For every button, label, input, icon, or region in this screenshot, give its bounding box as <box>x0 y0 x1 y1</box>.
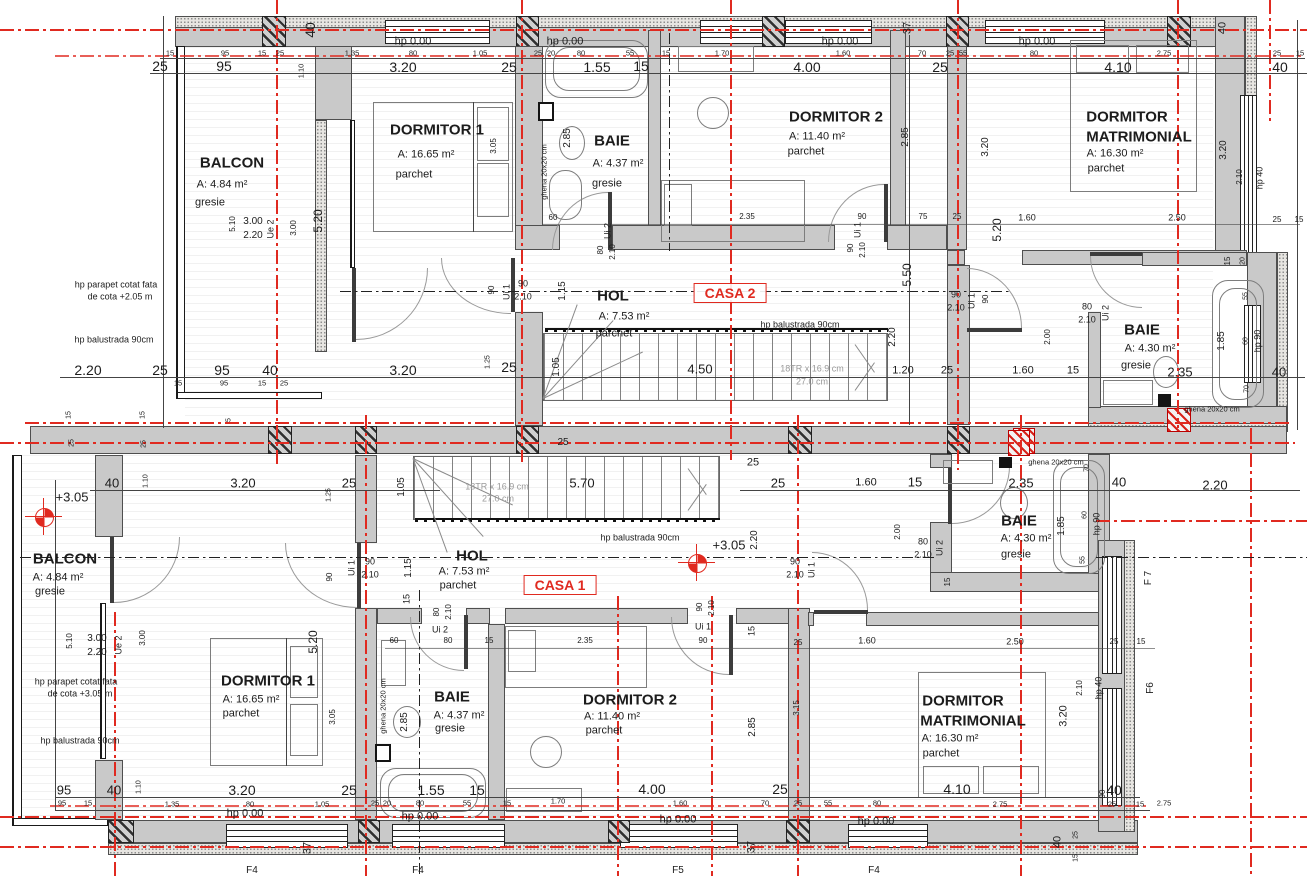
dim: 5.20 <box>312 209 324 232</box>
dim: 15 <box>1296 49 1304 57</box>
dim: 60 <box>1243 337 1250 345</box>
note: ghena 20x20 cm <box>1028 458 1083 466</box>
column <box>516 426 539 454</box>
wall-matrimonial-north-lower-a <box>808 612 814 626</box>
dim: 40 <box>1272 60 1288 74</box>
door-label: 90 <box>951 291 961 300</box>
dim: 2.20 <box>1202 479 1227 492</box>
door-label: 80 <box>1082 303 1092 312</box>
level-label: hp 0.00 <box>660 815 697 826</box>
dim: 1.70 <box>715 49 730 57</box>
dim: 15 <box>66 411 73 419</box>
dim: 37 <box>303 842 314 854</box>
dim: 1.60 <box>1018 214 1036 223</box>
dim: 2.75 <box>993 800 1008 808</box>
house-label: CASA 1 <box>524 575 597 595</box>
room-label: BAIE <box>1124 323 1160 338</box>
dim: 1.25 <box>326 488 333 502</box>
room-finish: parchet <box>923 749 960 760</box>
dim: 15 <box>140 411 147 419</box>
room-label: DORMITOR 2 <box>789 110 883 125</box>
dim: 15 <box>1295 216 1304 224</box>
dim: 1.85 <box>1217 331 1227 350</box>
door-label: Ui 2 <box>936 540 945 556</box>
dim: 25 <box>772 782 788 796</box>
dim: 25 <box>141 440 148 448</box>
dim: 25 <box>342 477 356 490</box>
chair <box>530 736 562 768</box>
room-label: BAIE <box>594 134 630 149</box>
dim: 2.10 <box>1236 169 1244 185</box>
dim: 60 <box>390 637 399 645</box>
dim: 25 <box>1273 49 1281 57</box>
dim: 1.05 <box>473 49 488 57</box>
level-label: hp 0.00 <box>1019 37 1056 48</box>
dim: 15 <box>166 49 174 57</box>
door-label: 80 <box>918 538 928 547</box>
dim: 3.05 <box>490 138 498 154</box>
dim-line <box>150 73 1307 74</box>
dim: 95 <box>220 379 228 387</box>
dim: 40 <box>262 363 278 377</box>
dim: 25 <box>941 366 953 377</box>
dim: 5.50 <box>901 263 913 286</box>
dim: 55 <box>1080 556 1087 564</box>
door-label: Ui 1 <box>695 623 711 632</box>
note: hp parapet cotat fata <box>35 678 118 687</box>
dim: 37 <box>903 22 914 34</box>
door-label: Ui 2 <box>1102 305 1111 321</box>
dim: 25 <box>1273 216 1282 224</box>
balcony-parapet-left-upper <box>176 46 185 394</box>
door-label: 2.10 <box>609 244 617 260</box>
dim: 40 <box>107 784 121 797</box>
level-label: hp 0.00 <box>395 37 432 48</box>
axis-line <box>957 0 959 470</box>
stair-note: 18TR x 16.9 cm <box>780 365 844 374</box>
dim: 1.35 <box>345 49 360 57</box>
dim: 4.10 <box>1104 60 1131 74</box>
house-label: CASA 2 <box>694 283 767 303</box>
dim: 2.35 <box>1167 366 1192 379</box>
door-label: 80 <box>597 246 605 255</box>
axis-line <box>25 422 1290 424</box>
axis-line <box>521 0 523 462</box>
door-label: 2.10 <box>445 604 453 620</box>
room-label: DORMITOR <box>1086 110 1167 125</box>
column <box>762 16 785 47</box>
dim: 2.00 <box>894 524 902 540</box>
stair-note: 18TR x 16.9 cm <box>465 483 529 492</box>
room-label: MATRIMONIAL <box>920 714 1026 729</box>
dim: 90 <box>699 637 708 645</box>
dim: 55 <box>1243 292 1250 300</box>
door-label: Ui 2 <box>432 626 448 635</box>
section-line <box>669 33 670 251</box>
dim: 95 <box>58 799 66 807</box>
dim: 15 <box>503 799 511 807</box>
dim: 2.20 <box>74 363 101 377</box>
dim: 1.55 <box>583 60 610 74</box>
dim: 55 <box>959 49 967 57</box>
column <box>358 820 380 843</box>
dim: 15 <box>633 59 649 73</box>
door-label: Ui 1 <box>503 284 512 300</box>
pillow <box>983 766 1039 794</box>
dim: 3.20 <box>389 363 416 377</box>
axis-line <box>0 29 1307 31</box>
dim: 80 <box>416 799 424 807</box>
note: hp balustrada 90cm <box>760 321 839 330</box>
room-finish: parchet <box>788 147 825 158</box>
door-label: 90 <box>696 603 704 612</box>
dim: 25 <box>946 49 954 57</box>
window-label: F 7 <box>1144 571 1154 585</box>
note: hp balustrada 90cm <box>40 737 119 746</box>
room-area: A: 16.65 m² <box>223 695 280 706</box>
dim: 25 <box>1073 831 1080 839</box>
room-finish: parchet <box>596 329 633 340</box>
dim: 4.00 <box>638 782 665 796</box>
door-label: 2.10 <box>947 304 965 313</box>
dim: 25 <box>501 360 517 374</box>
column <box>608 820 630 843</box>
dim: 40 <box>303 22 317 38</box>
room-finish: gresie <box>1121 361 1151 372</box>
dim: 2.85 <box>748 717 758 736</box>
dim: hp 40 <box>1256 167 1265 190</box>
dim: 1.60 <box>858 637 876 646</box>
dim: 2.35 <box>577 637 593 645</box>
dim: 2.00 <box>1044 329 1052 345</box>
dim: 95 <box>221 49 229 57</box>
pier-balcony-upper-stip <box>315 120 327 352</box>
dim: 90 <box>858 213 867 221</box>
dim: 40 <box>1218 22 1229 34</box>
dim-line <box>55 480 56 810</box>
stair-balustrade-lower <box>415 518 720 522</box>
column <box>516 16 539 47</box>
dim: 55 <box>824 799 832 807</box>
window-label: F5 <box>672 866 684 876</box>
door-label: 2.10 <box>859 242 867 258</box>
door-leaf-matrimonial-upper <box>967 328 1022 332</box>
door-leaf-ui2-lower <box>464 615 468 669</box>
door-label: 3.00 <box>87 634 106 644</box>
dim: 20 <box>383 799 391 807</box>
dim: 1.15 <box>558 281 568 300</box>
dim: 25 <box>69 439 76 447</box>
wall-dorm2-north-lower-b <box>736 608 790 624</box>
dim: 4.50 <box>687 363 712 376</box>
balcony-rail-upper <box>350 120 355 268</box>
level-label: hp 0.00 <box>402 812 439 823</box>
dim: 15 <box>944 578 952 587</box>
dim: 95 <box>214 363 230 377</box>
door-label: 90 <box>326 573 334 582</box>
dim: 15 <box>485 637 494 645</box>
dim: 5.10 <box>66 633 74 649</box>
dim: 15 <box>1224 257 1232 266</box>
wall-dorm1-bath-upper-b <box>515 312 543 426</box>
dim: 5.20 <box>991 218 1003 241</box>
door-label: 90 <box>488 286 496 295</box>
dim: 2.50 <box>1168 214 1186 223</box>
room-area: A: 4.37 m² <box>593 159 644 170</box>
level-marker <box>35 508 54 527</box>
dim: 15 <box>258 379 266 387</box>
door-label: Ue 2 <box>115 635 124 654</box>
room-finish: parchet <box>586 726 623 737</box>
window-bottom-f5 <box>620 824 738 848</box>
dim: 3.05 <box>329 709 337 725</box>
dim: 80 <box>873 799 881 807</box>
room-label: BALCON <box>200 156 264 171</box>
dim: 1.10 <box>136 780 143 794</box>
dim: 3.20 <box>1219 140 1229 159</box>
door-leaf-ui1-lower <box>729 615 733 675</box>
window-label: F4 <box>412 866 424 876</box>
dim: 5.10 <box>229 216 237 232</box>
window-bottom-f4a <box>226 824 348 848</box>
dim: 4.10 <box>943 782 970 796</box>
dim: 70 <box>761 799 769 807</box>
note: hp parapet cotat fata <box>75 281 158 290</box>
level-marker-cross <box>43 498 45 535</box>
bed-headline <box>286 638 287 766</box>
chair <box>697 97 729 129</box>
dim: 2.85 <box>400 712 410 731</box>
wall-matrimonial-south-a <box>947 250 965 265</box>
floor-plan: hp 0.00hp 0.00hp 0.00hp 0.00159515251.35… <box>0 0 1307 876</box>
room-area: A: 4.30 m² <box>1001 534 1052 545</box>
room-finish: parchet <box>223 709 260 720</box>
column <box>268 426 292 454</box>
level-marker-cross <box>696 544 698 581</box>
dim: 15 <box>174 379 182 387</box>
dim: 3.20 <box>228 783 255 797</box>
dim: 40 <box>105 477 119 490</box>
room-area: A: 16.65 m² <box>398 150 455 161</box>
dim: 25 <box>501 60 517 74</box>
ghena-box <box>375 744 391 762</box>
dim: 2.35 <box>739 213 755 221</box>
level-label: hp 0.00 <box>822 37 859 48</box>
door-label: 2.10 <box>708 600 716 616</box>
dim: 20 <box>1240 257 1247 265</box>
door-label: 2.10 <box>914 551 932 560</box>
axis-line <box>0 846 1307 848</box>
room-label: HOL <box>597 289 629 304</box>
wall-bath2-west <box>1088 312 1101 408</box>
dim: 2.20 <box>750 530 760 549</box>
door-label: Ui 2 <box>604 223 613 239</box>
room-label: DORMITOR <box>922 694 1003 709</box>
window-bottom-f4b <box>392 824 505 848</box>
sink <box>943 460 993 484</box>
door-label: 80 <box>433 608 441 617</box>
door-label: Ui 1 <box>968 293 977 309</box>
balcony-parapet-left-lower <box>12 455 22 823</box>
door-leaf-ui2-upper <box>608 192 612 250</box>
dim-line <box>543 224 1300 225</box>
dim: 25 <box>152 363 168 377</box>
level-label: hp 0.00 <box>547 37 584 48</box>
dim: 5.20 <box>307 630 319 653</box>
dim: 25 <box>747 458 759 469</box>
dim: 5.70 <box>569 477 594 490</box>
room-finish: gresie <box>195 198 225 209</box>
dim: 60 <box>549 214 558 222</box>
door-label: 2.20 <box>87 648 106 658</box>
level-label: +3.05 <box>56 491 89 504</box>
wall-matrimonial-north-lower-b <box>866 612 1100 626</box>
door-label: 2.10 <box>1078 316 1096 325</box>
pillow <box>477 163 509 217</box>
axis-line <box>0 442 1295 444</box>
dim-line <box>55 797 1140 798</box>
dim: 75 <box>919 213 928 221</box>
room-area: A: 4.84 m² <box>197 180 248 191</box>
dim: 40 <box>1112 476 1126 489</box>
door-label: 3.00 <box>243 217 262 227</box>
dim: 2.50 <box>1006 638 1024 647</box>
dim: 2.85 <box>901 127 911 146</box>
axis-line <box>1269 0 1271 122</box>
stair-note: 27.0 cm <box>796 378 828 387</box>
dim-line <box>90 490 440 491</box>
door-label: 90 <box>847 244 855 253</box>
dim: 2.75 <box>1157 49 1172 57</box>
dim: 25 <box>280 379 288 387</box>
dim: 15 <box>1137 638 1146 646</box>
door-label: 2.10 <box>514 293 532 302</box>
note: de cota +2.05 m <box>88 293 153 302</box>
desk <box>506 788 582 812</box>
dim: 1.15 <box>404 558 414 577</box>
dim: 15 <box>258 49 266 57</box>
level-marker <box>688 554 707 573</box>
dim: 25 <box>341 783 357 797</box>
note: ghena 20x20 cm <box>379 678 387 733</box>
room-area: A: 7.53 m² <box>439 567 490 578</box>
dim: 2.35 <box>1008 477 1033 490</box>
dim: 40 <box>1053 836 1064 848</box>
dim: 1.05 <box>315 800 330 808</box>
dim: 15 <box>908 476 922 489</box>
column <box>108 820 134 843</box>
dim: 25 <box>152 59 168 73</box>
balcony-parapet-bottom-lower <box>12 818 108 826</box>
axis-line <box>1096 520 1307 522</box>
dim: 3.20 <box>1059 705 1070 726</box>
dim: 1.60 <box>1012 366 1033 377</box>
wall-balcony-lower-a <box>95 455 123 537</box>
dim: 3.20 <box>230 477 255 490</box>
door-label: 2.10 <box>361 571 379 580</box>
dim: 2.85 <box>563 128 573 147</box>
room-label: BAIE <box>1001 514 1037 529</box>
dim: 15 <box>748 626 757 636</box>
room-finish: parchet <box>440 581 477 592</box>
dim: 25 <box>534 49 542 57</box>
boiler <box>1158 394 1171 407</box>
dim: 25 <box>794 639 803 647</box>
window-f7 <box>1102 556 1122 674</box>
dim: 2.20 <box>888 327 898 346</box>
section-line <box>419 590 420 876</box>
dim: 25 <box>276 49 284 57</box>
wall-dorm2-north-lower-a <box>505 608 688 624</box>
axis-line <box>365 415 367 876</box>
dim: 80 <box>444 637 453 645</box>
door-label: Ui 1 <box>854 222 863 238</box>
dim-line <box>55 810 1150 811</box>
door-label: 90 <box>790 558 800 567</box>
room-finish: gresie <box>592 179 622 190</box>
boiler <box>999 457 1012 468</box>
dim: 3.00 <box>290 220 298 236</box>
dim: 5 <box>226 418 233 422</box>
dim-line <box>160 58 1305 59</box>
level-label: +3.05 <box>713 539 746 552</box>
dim-line <box>60 377 1305 378</box>
dim: 15 <box>1073 854 1080 862</box>
dim: hp 90 <box>1254 330 1263 353</box>
balcony-parapet-bottom-upper <box>176 392 322 399</box>
dim: 15 <box>662 49 670 57</box>
dim: 4.00 <box>793 60 820 74</box>
party-wall <box>30 426 1287 454</box>
dim: 25 <box>1110 638 1119 646</box>
room-finish: gresie <box>1001 550 1031 561</box>
dim: 1.10 <box>297 64 305 79</box>
room-label: BALCON <box>33 552 97 567</box>
room-area: A: 16.30 m² <box>922 734 979 745</box>
dim: 15 <box>1136 800 1144 808</box>
window-label: F4 <box>246 866 258 876</box>
dim: 80 <box>577 49 585 57</box>
level-label: hp 0.00 <box>227 809 264 820</box>
column <box>262 16 286 47</box>
axis-line <box>711 596 713 876</box>
room-area: A: 4.37 m² <box>434 711 485 722</box>
dim: 20 <box>547 49 555 57</box>
column <box>788 426 812 454</box>
dim: 80 <box>409 49 417 57</box>
stair-note: 27.0 cm <box>482 495 514 504</box>
room-finish: parchet <box>396 170 433 181</box>
wall-right-lower-insulation <box>1124 540 1135 832</box>
door-leaf-dorm1-upper <box>511 258 515 312</box>
room-label: DORMITOR 1 <box>221 674 315 689</box>
note: de cota +3.05 m <box>48 690 113 699</box>
door-label: Ue 2 <box>267 219 276 238</box>
dim: 25 <box>1108 800 1116 808</box>
dim-line <box>1297 20 1298 430</box>
room-area: A: 16.30 m² <box>1087 149 1144 160</box>
note: ghena 20x20 cm <box>1184 405 1239 413</box>
dim-line <box>385 648 1155 649</box>
dim: 25 <box>557 438 568 448</box>
note: hp balustrada 90cm <box>74 336 153 345</box>
sink <box>1103 380 1153 405</box>
dim: 3.20 <box>389 60 416 74</box>
dim: hp 90 <box>1093 513 1102 536</box>
dim: 3.15 <box>793 700 801 716</box>
door-label: 90 <box>365 558 375 567</box>
dim: 37 <box>747 841 758 853</box>
